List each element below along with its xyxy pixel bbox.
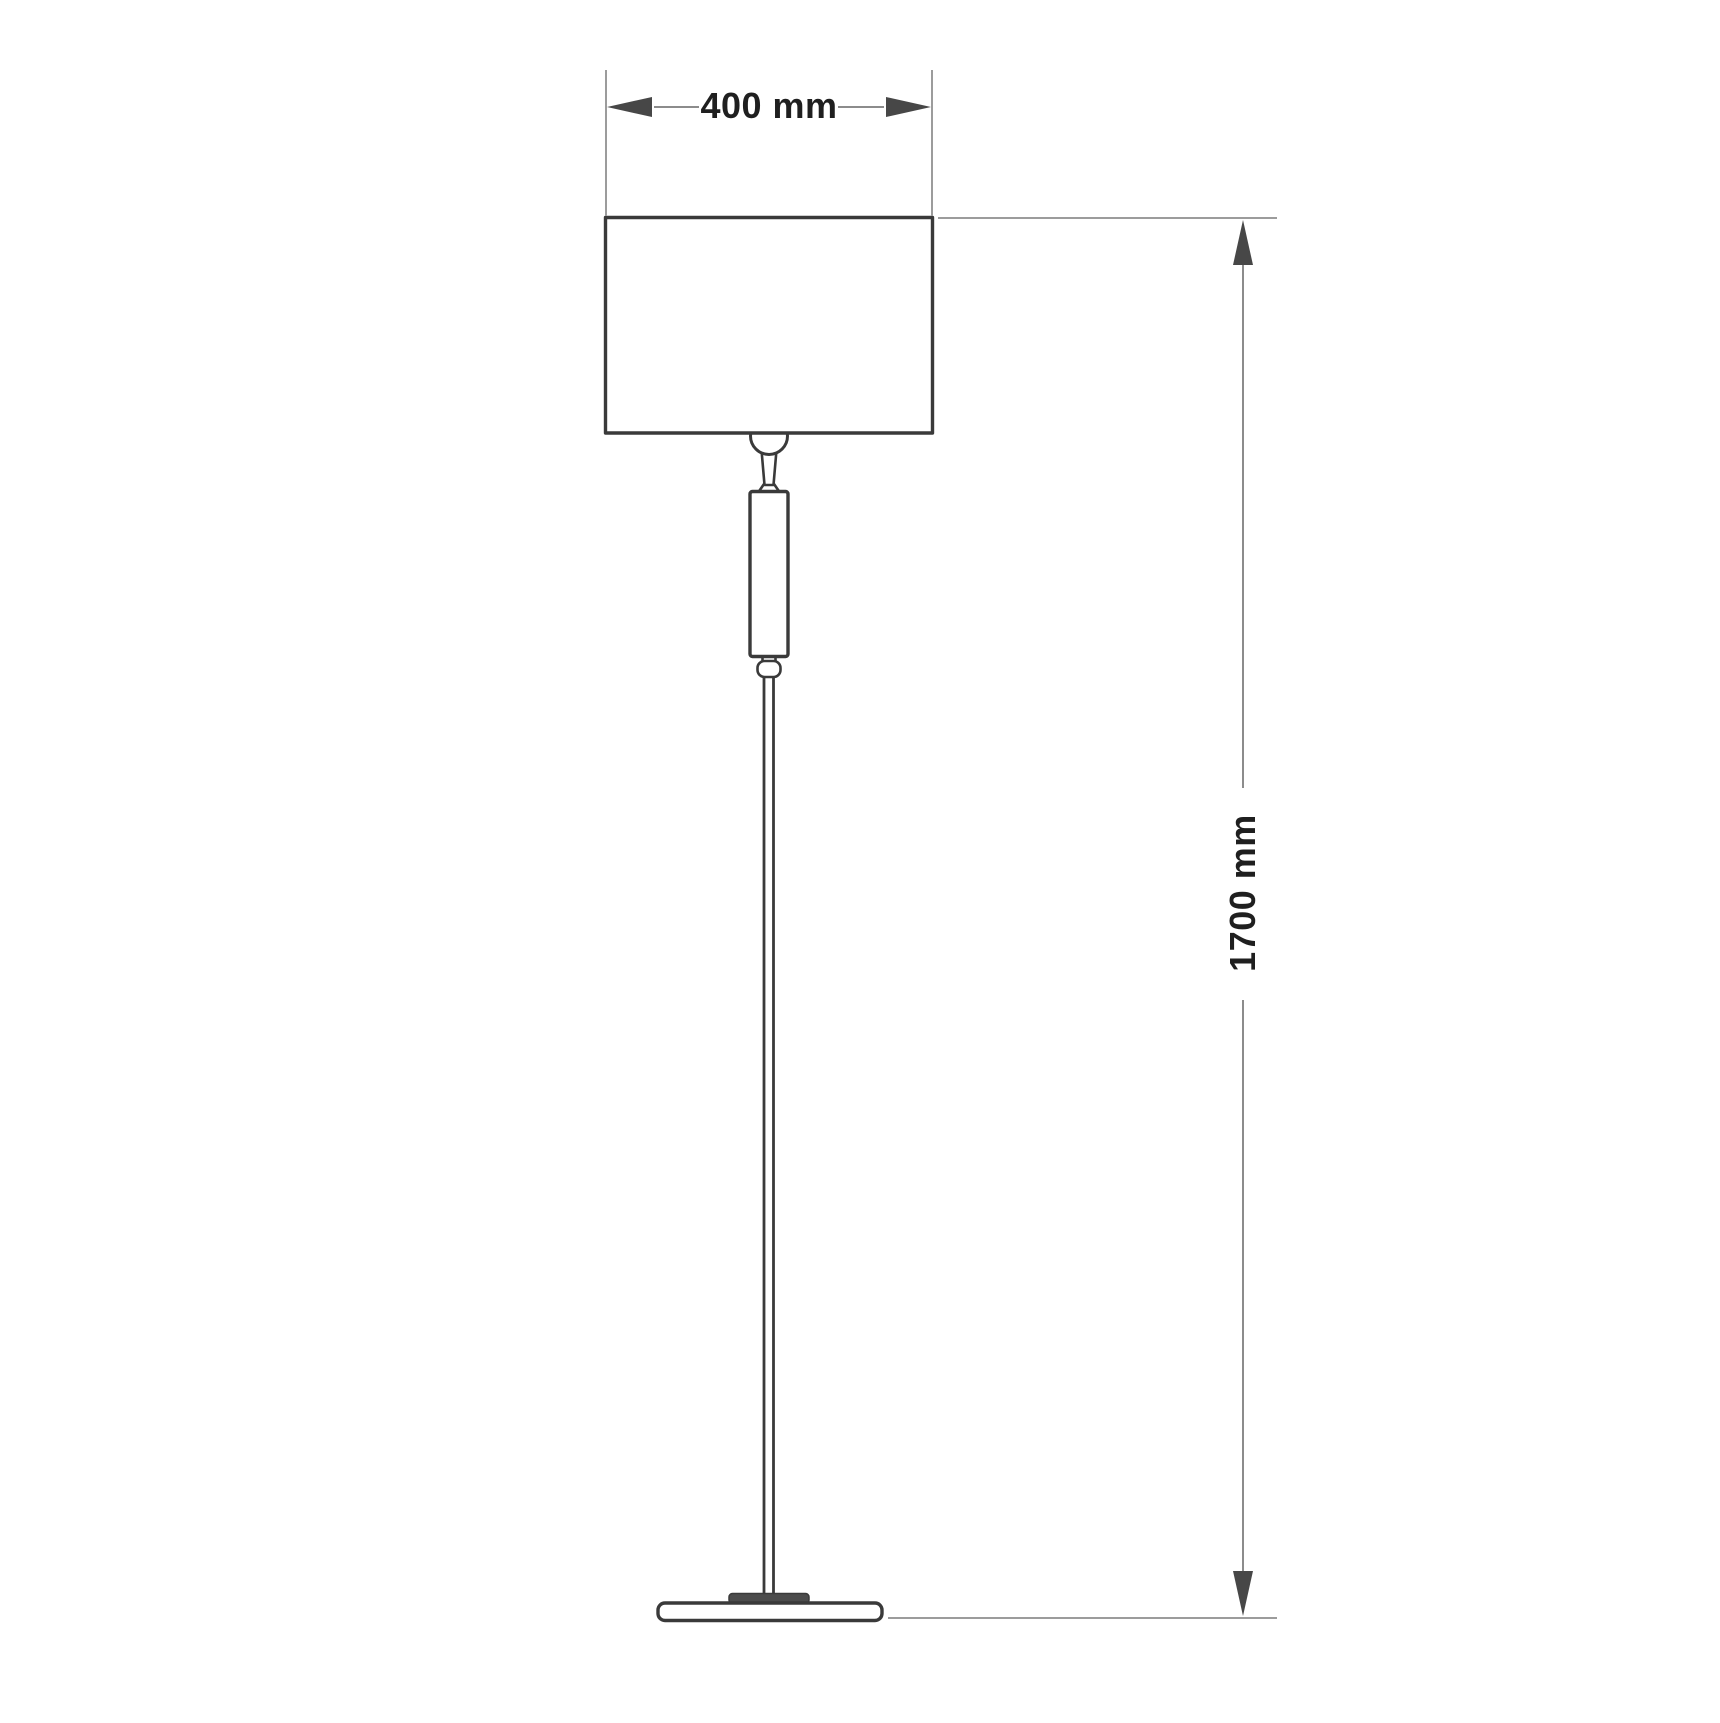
floor-lamp-dimension-diagram: 400 mm 1700 mm	[0, 0, 1720, 1723]
stem-upper-cylinder	[750, 492, 788, 657]
floor-lamp-outline	[606, 218, 933, 1621]
pole	[764, 660, 774, 1596]
arrowhead-left-icon	[607, 97, 652, 117]
base	[658, 1603, 882, 1621]
arrowhead-up-icon	[1233, 220, 1253, 265]
height-dimension-annotation: 1700 mm	[888, 218, 1277, 1618]
width-dimension-label: 400 mm	[700, 85, 837, 126]
stem-collar	[758, 661, 781, 677]
arrowhead-right-icon	[886, 97, 931, 117]
arrowhead-down-icon	[1233, 1571, 1253, 1616]
lampshade	[606, 218, 933, 434]
width-dimension-annotation: 400 mm	[606, 70, 932, 216]
height-dimension-label: 1700 mm	[1222, 814, 1263, 972]
drawing-canvas: 400 mm 1700 mm	[0, 0, 1720, 1723]
